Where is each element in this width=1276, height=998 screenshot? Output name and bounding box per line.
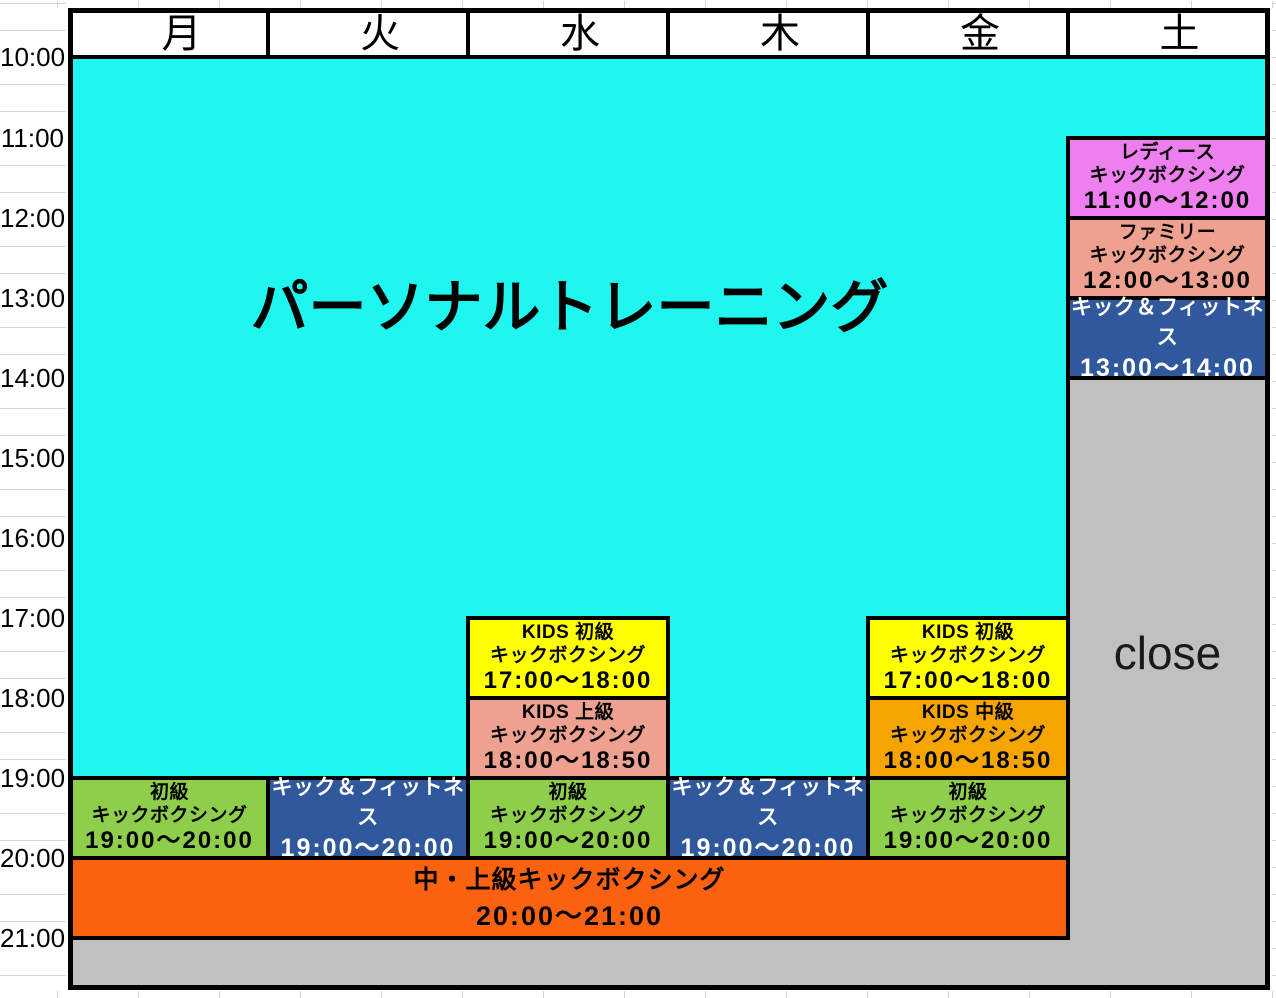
gridline [1191,991,1192,998]
time-label-17: 17:00 [0,603,66,633]
day-header-fri: 金 [870,13,1066,55]
time-label-19: 19:00 [0,763,66,793]
class-kids-advanced-wed: KIDS 上級 キックボクシング 18:00〜18:50 [470,700,666,776]
class-ladies-kickboxing-sat: レディース キックボクシング 11:00〜12:00 [1070,140,1265,216]
gridline [381,991,382,998]
gridline [1110,1,1111,8]
gridline [1272,543,1276,544]
gridline [462,1,463,8]
gridline [1029,1,1030,8]
time-label-10: 10:00 [0,42,66,72]
class-title: 初級 [548,781,587,804]
closed-label: close [1070,598,1265,708]
gridline [1272,867,1276,868]
class-kids-beginner-wed: KIDS 初級 キックボクシング 17:00〜18:00 [470,620,666,696]
class-time: 19:00〜20:00 [884,827,1053,855]
gridline [1272,219,1276,220]
class-beginner-kickboxing-mon: 初級 キックボクシング 19:00〜20:00 [73,780,266,856]
day-header-wed: 水 [470,13,666,55]
gridline [0,570,66,571]
class-time: 17:00〜18:00 [884,667,1053,695]
gridline [0,273,66,274]
gridline [705,991,706,998]
gridline [1272,759,1276,760]
gridline [0,111,66,112]
class-time: 13:00〜14:00 [1080,353,1255,383]
class-title: 初級 [150,781,189,804]
day-header-sat: 土 [1070,13,1265,55]
gridline [1272,516,1276,517]
class-subtitle: キックボクシング [1089,244,1245,267]
gridline [1191,1,1192,8]
gridline [0,408,66,409]
gridline [0,489,66,490]
gridline [1272,948,1276,949]
class-subtitle: キックボクシング [890,724,1046,747]
gridline [1272,921,1276,922]
gridline [0,192,66,193]
gridline [1272,705,1276,706]
gridline [0,597,66,598]
gridline [0,435,66,436]
gridline [786,1,787,8]
class-subtitle: キックボクシング [490,724,646,747]
gridline [1272,192,1276,193]
time-label-15: 15:00 [0,443,66,473]
class-time: 11:00〜12:00 [1084,187,1251,215]
gridline [543,1,544,8]
day-header-thu: 木 [670,13,866,55]
gridline [1272,570,1276,571]
time-label-11: 11:00 [0,123,66,153]
class-title: ファミリー [1119,221,1217,244]
class-kids-intermediate-fri: KIDS 中級 キックボクシング 18:00〜18:50 [870,700,1066,776]
gridline [1272,30,1276,31]
gridline [1272,786,1276,787]
day-header-tue: 火 [270,13,466,55]
gridline [1272,991,1273,998]
class-beginner-kickboxing-fri: 初級 キックボクシング 19:00〜20:00 [870,780,1066,856]
gridline [1272,975,1276,976]
time-label-18: 18:00 [0,683,66,713]
class-time: 20:00〜21:00 [476,898,663,934]
gridline [57,991,58,998]
closed-region-bottom [73,940,1265,985]
gridline [300,1,301,8]
class-beginner-kickboxing-wed: 初級 キックボクシング 19:00〜20:00 [470,780,666,856]
gridline [0,894,66,895]
gridline [0,516,66,517]
gridline [0,813,66,814]
gridline [381,1,382,8]
class-title: キック＆フィットネス [670,773,866,833]
gridline [1272,165,1276,166]
gridline [0,165,66,166]
class-title: KIDS 中級 [922,701,1014,724]
gridline [1110,991,1111,998]
class-subtitle: キックボクシング [490,644,646,667]
gridline [1272,732,1276,733]
gridline [138,991,139,998]
class-title: KIDS 上級 [522,701,614,724]
class-subtitle: キックボクシング [1089,164,1245,187]
class-title: キック＆フィットネス [270,773,466,833]
class-kick-fitness-tue: キック＆フィットネス 19:00〜20:00 [270,780,466,856]
gridline [786,991,787,998]
gridline [0,732,66,733]
class-time: 18:00〜18:50 [884,747,1053,775]
gridline [1272,435,1276,436]
class-title: レディース [1120,141,1215,164]
gridline [0,246,66,247]
gridline [867,1,868,8]
gridline [1029,991,1030,998]
gridline [624,1,625,8]
gridline [1272,597,1276,598]
gridline [1272,246,1276,247]
gridline [219,1,220,8]
gridline [1272,300,1276,301]
gridline [1272,84,1276,85]
class-time: 19:00〜20:00 [681,833,856,863]
class-time: 17:00〜18:00 [484,667,653,695]
class-kick-fitness-sat: キック＆フィットネス 13:00〜14:00 [1070,300,1265,376]
gridline [1272,408,1276,409]
gridline [0,921,66,922]
class-kids-beginner-fri: KIDS 初級 キックボクシング 17:00〜18:00 [870,620,1066,696]
class-time: 12:00〜13:00 [1083,267,1252,295]
time-label-12: 12:00 [0,203,66,233]
class-time: 19:00〜20:00 [85,827,254,855]
gridline [1272,381,1276,382]
gridline [1272,624,1276,625]
time-label-13: 13:00 [0,283,66,313]
gridline [1272,813,1276,814]
class-subtitle: キックボクシング [890,804,1046,827]
time-label-20: 20:00 [0,843,66,873]
class-title: KIDS 初級 [522,621,614,644]
gridline [1272,489,1276,490]
gridline [300,991,301,998]
time-label-14: 14:00 [0,363,66,393]
class-subtitle: キックボクシング [890,644,1046,667]
gridline [0,30,66,31]
class-subtitle: キックボクシング [490,804,646,827]
gridline [867,991,868,998]
class-mid-advanced-kickboxing: 中・上級キックボクシング 20:00〜21:00 [73,860,1066,936]
gridline [0,759,66,760]
gridline [0,840,66,841]
gridline [1272,327,1276,328]
class-time: 19:00〜20:00 [281,833,456,863]
personal-training-label: パーソナルトレーニング [73,263,1066,353]
time-label-16: 16:00 [0,523,66,553]
class-title: キック＆フィットネス [1070,293,1265,353]
weekly-class-schedule: 10:00 11:00 12:00 13:00 14:00 15:00 16:0… [0,0,1276,998]
gridline [57,1,58,8]
gridline [0,327,66,328]
gridline [1272,894,1276,895]
class-title: 中・上級キックボクシング [413,862,725,898]
gridline [1272,678,1276,679]
gridline [0,84,66,85]
gridline [0,651,66,652]
gridline [1272,462,1276,463]
day-header-mon: 月 [73,13,266,55]
gridline [1272,138,1276,139]
class-family-kickboxing-sat: ファミリー キックボクシング 12:00〜13:00 [1070,220,1265,296]
class-time: 19:00〜20:00 [484,827,653,855]
time-label-21: 21:00 [0,923,66,953]
gridline [138,1,139,8]
gridline [462,991,463,998]
gridline [1272,111,1276,112]
gridline [948,991,949,998]
gridline [948,1,949,8]
gridline [0,354,66,355]
gridline [1272,273,1276,274]
class-title: KIDS 初級 [922,621,1014,644]
gridline [1272,57,1276,58]
class-title: 初級 [948,781,987,804]
gridline [1272,1,1273,8]
gridline [0,678,66,679]
timetable: 月 火 水 木 金 土 パーソナルトレーニング close レディース キックボ… [68,8,1270,990]
gridline [1272,840,1276,841]
gridline [624,991,625,998]
class-time: 18:00〜18:50 [484,747,653,775]
gridline [0,975,66,976]
gridline [705,1,706,8]
gridline [1272,354,1276,355]
class-subtitle: キックボクシング [91,804,247,827]
gridline [219,991,220,998]
gridline [543,991,544,998]
class-kick-fitness-thu: キック＆フィットネス 19:00〜20:00 [670,780,866,856]
gridline [1272,651,1276,652]
